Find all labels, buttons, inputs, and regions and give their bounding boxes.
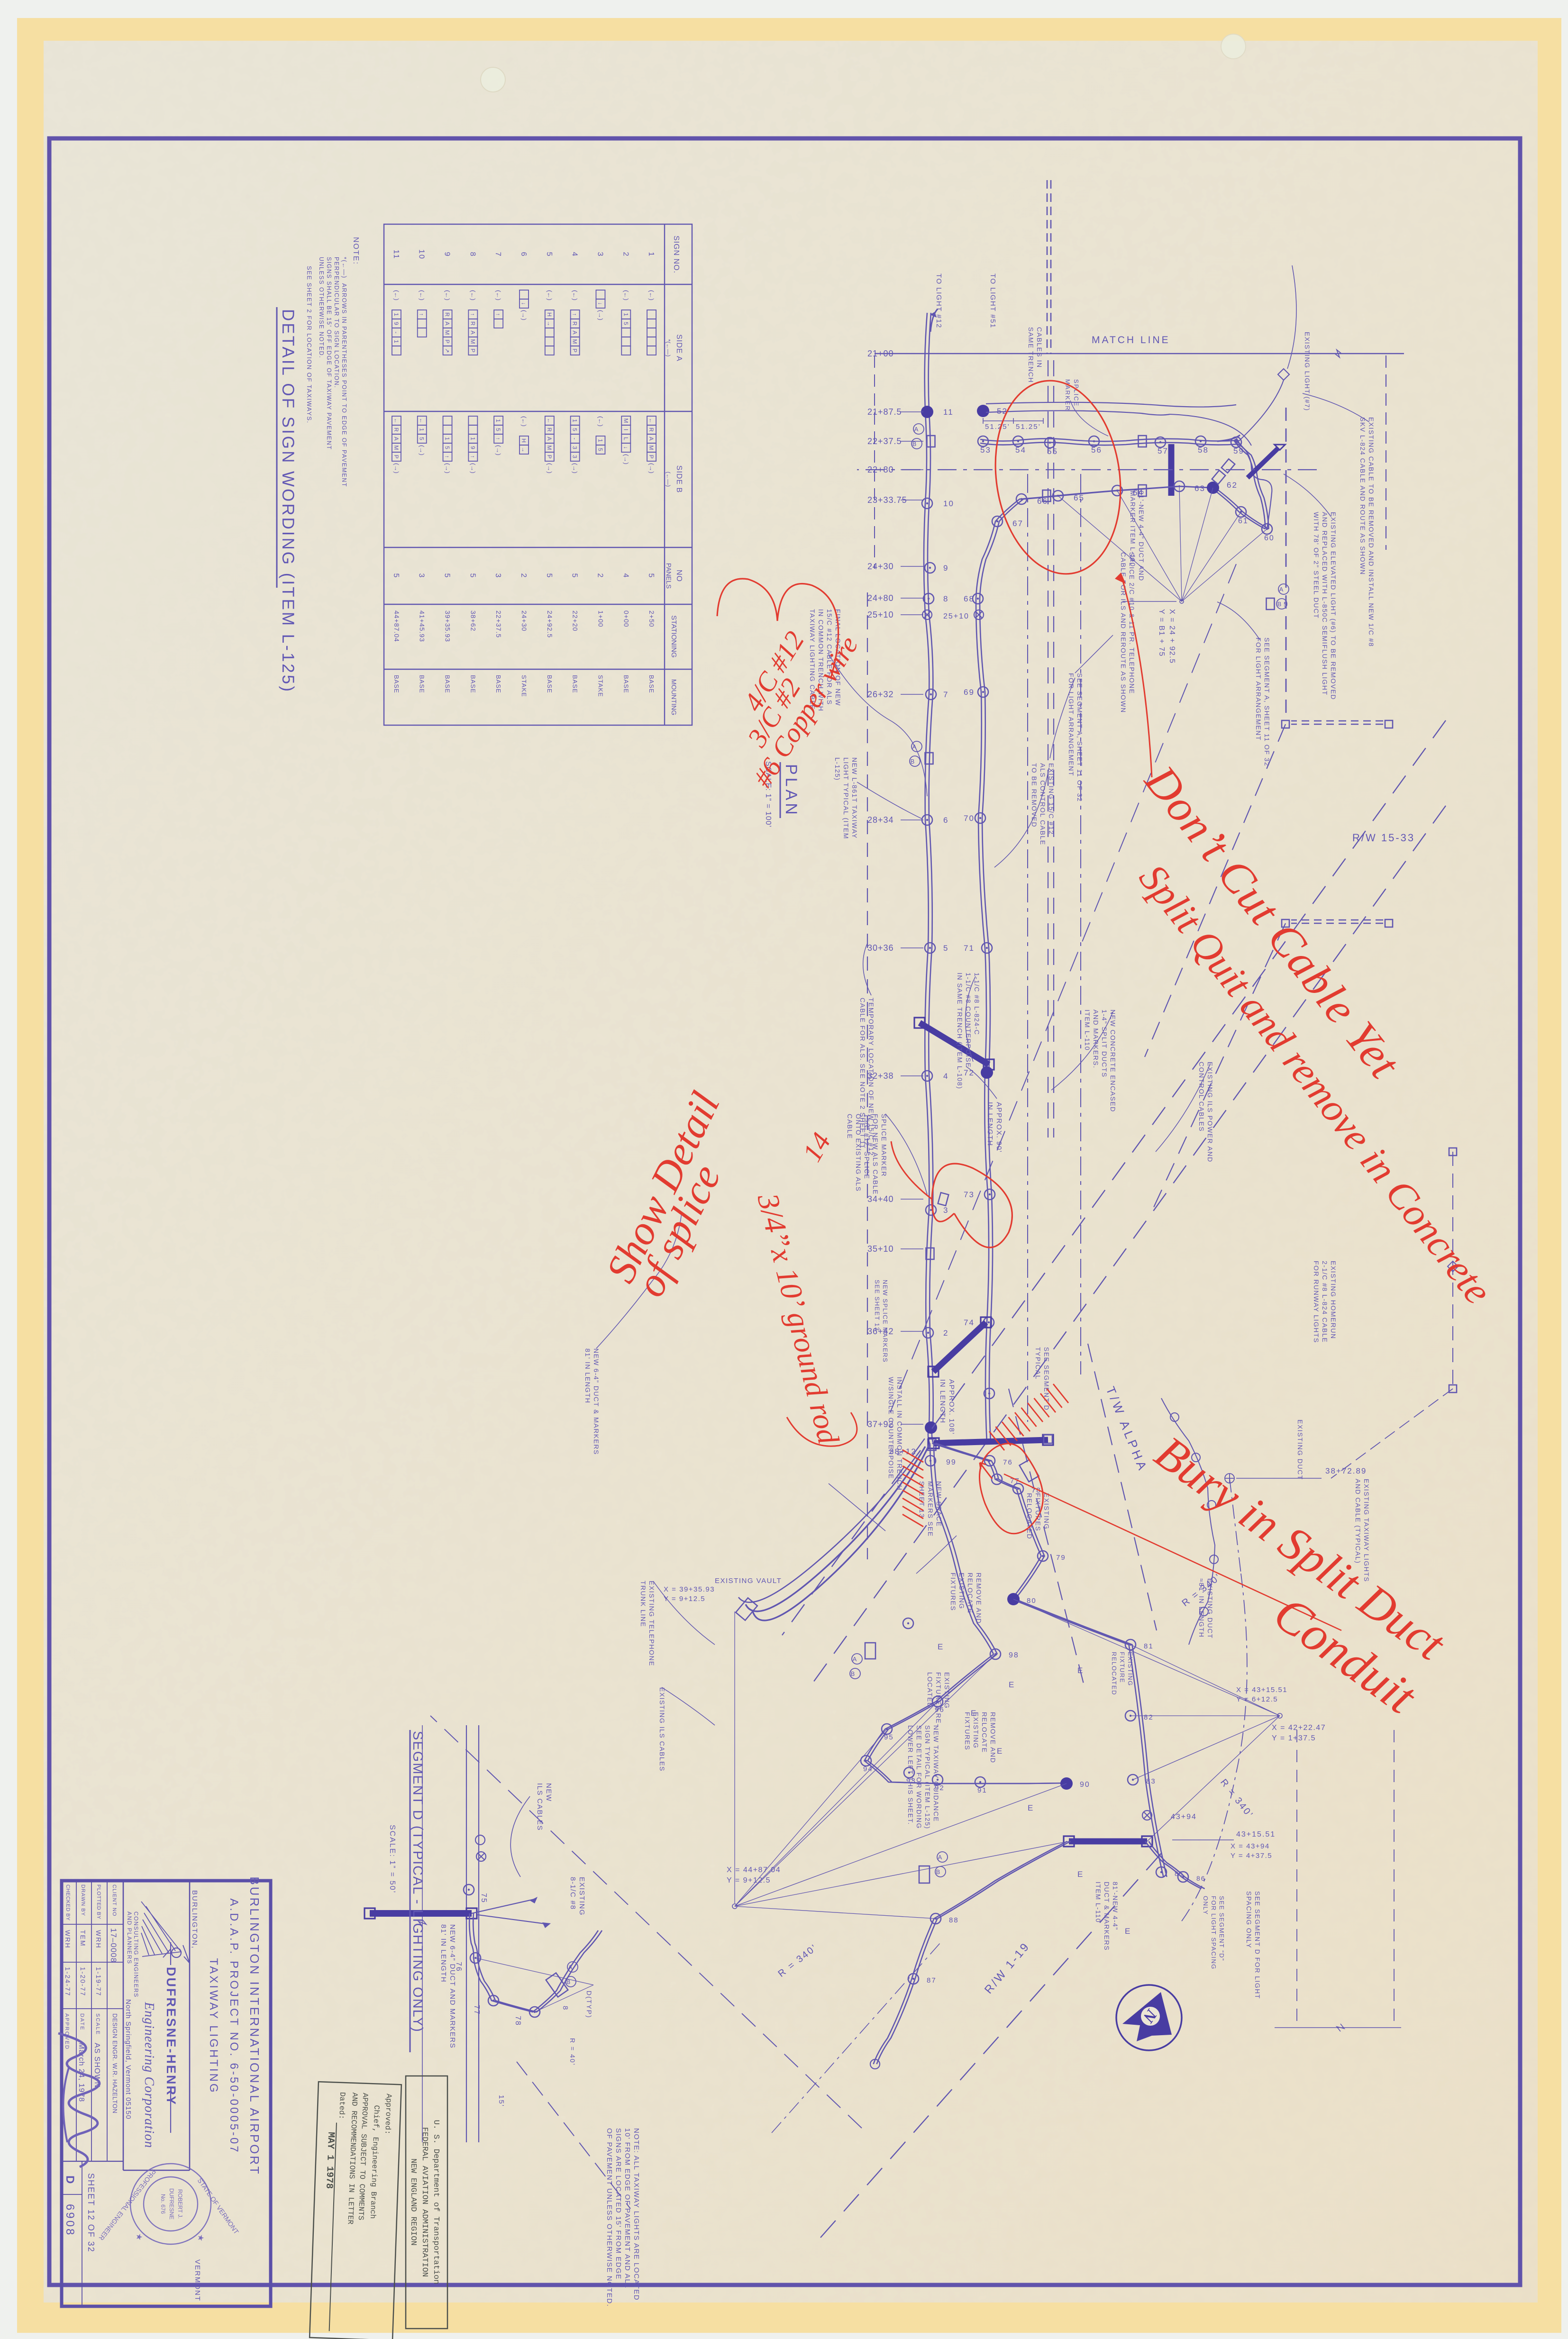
svg-text:BURLINGTON,: BURLINGTON,	[191, 1890, 199, 1949]
svg-text:W/SINGLE COUNTERPOISE: W/SINGLE COUNTERPOISE	[887, 1377, 895, 1479]
svg-text:DUFRESNE-HENRY: DUFRESNE-HENRY	[164, 1967, 178, 2106]
svg-text:24+30: 24+30	[520, 610, 528, 631]
svg-text:87: 87	[927, 1976, 937, 1984]
svg-text:EXISTING: EXISTING	[958, 1573, 966, 1609]
svg-text:BASE: BASE	[622, 675, 629, 693]
svg-text:9: 9	[393, 322, 400, 325]
svg-text:X = 42+22.47: X = 42+22.47	[1272, 1724, 1326, 1732]
svg-text:BASE: BASE	[393, 675, 400, 693]
svg-text:X = 43+94: X = 43+94	[1231, 1842, 1270, 1850]
svg-text:SCALE: SCALE	[95, 2013, 100, 2035]
svg-text:REMOVE AND: REMOVE AND	[989, 1712, 997, 1763]
svg-text:CHECKED BY: CHECKED BY	[65, 1884, 71, 1921]
svg-text:EXISTING: EXISTING	[1127, 1652, 1134, 1686]
svg-text:SCALE: 1” = 50’: SCALE: 1” = 50’	[388, 1825, 396, 1893]
svg-text:↓: ↓	[520, 302, 527, 305]
svg-text:IN SAME TRENCH (ITEM L-108): IN SAME TRENCH (ITEM L-108)	[956, 973, 964, 1089]
svg-text:8-1/C #8: 8-1/C #8	[569, 1877, 577, 1910]
svg-text:Y = 9+12.5: Y = 9+12.5	[664, 1595, 705, 1603]
svg-text:←: ←	[546, 418, 553, 424]
svg-text:1: 1	[469, 437, 476, 440]
svg-text:95: 95	[884, 1733, 894, 1741]
svg-text:L-125): L-125)	[834, 757, 841, 781]
svg-text:23+33.75: 23+33.75	[867, 495, 907, 505]
svg-text:44+87.04: 44+87.04	[393, 610, 401, 642]
svg-text:EXISTING CABLE TO BE REMOVED A: EXISTING CABLE TO BE REMOVED AND INSTALL…	[1367, 417, 1375, 647]
svg-text:PANELS: PANELS	[665, 563, 673, 589]
svg-text:VERMONT: VERMONT	[193, 2259, 201, 2302]
svg-text:P: P	[572, 348, 578, 352]
svg-text:82: 82	[1144, 1713, 1154, 1721]
svg-text:Approved:: Approved:	[383, 2093, 393, 2135]
svg-text:BASE: BASE	[469, 675, 476, 693]
svg-text:P: P	[546, 455, 553, 458]
svg-text:WRH: WRH	[64, 1930, 72, 1948]
svg-text:EXISTING DUCT: EXISTING DUCT	[1296, 1420, 1304, 1480]
svg-text:73: 73	[964, 1190, 975, 1199]
svg-text:R: R	[393, 428, 400, 432]
svg-text:81’-NEW 4-4” DUCT AND: 81’-NEW 4-4” DUCT AND	[1138, 491, 1145, 582]
svg-text:CONTROL CABLES: CONTROL CABLES	[1198, 1062, 1205, 1132]
svg-text:↑: ↑	[469, 455, 476, 458]
svg-text:FOR LIGHT SPACING: FOR LIGHT SPACING	[1210, 1896, 1217, 1970]
svg-text:P: P	[469, 348, 476, 352]
svg-text:E: E	[1125, 1927, 1131, 1936]
svg-text:PLOTTED BY: PLOTTED BY	[96, 1884, 101, 1920]
svg-text:CONSULTING ENGINEERS: CONSULTING ENGINEERS	[133, 1911, 139, 1998]
svg-text:MATCH LINE: MATCH LINE	[1092, 335, 1170, 346]
svg-text:LOCATED: LOCATED	[926, 1672, 934, 1708]
svg-text:STAKE: STAKE	[597, 675, 604, 697]
svg-text:SEE SEGMENT A, SHEET 11 OF 32: SEE SEGMENT A, SHEET 11 OF 32	[1263, 637, 1271, 766]
svg-text:X = 39+35.93: X = 39+35.93	[664, 1585, 715, 1593]
svg-text:*(←—): *(←—)	[665, 339, 672, 357]
svg-text:RELOCATED: RELOCATED	[1111, 1652, 1118, 1695]
svg-text:74: 74	[964, 1318, 975, 1327]
svg-text:STATIONING: STATIONING	[670, 615, 678, 657]
svg-text:57: 57	[1158, 446, 1168, 455]
svg-text:2: 2	[596, 573, 604, 579]
svg-text:5: 5	[545, 252, 553, 257]
svg-text:3: 3	[572, 455, 578, 458]
svg-text:A: A	[393, 437, 400, 440]
svg-text:24+80: 24+80	[867, 593, 894, 603]
svg-text:TO BE REMOVED: TO BE REMOVED	[1030, 763, 1038, 828]
svg-text:81’-NEW 4-4”: 81’-NEW 4-4”	[1112, 1882, 1119, 1930]
svg-text:5: 5	[419, 437, 425, 440]
svg-text:→: →	[520, 447, 527, 453]
svg-text:SPLICE: SPLICE	[1073, 379, 1080, 407]
svg-text:FIXTURES RE-: FIXTURES RE-	[935, 1672, 942, 1727]
svg-text:A: A	[546, 437, 553, 440]
svg-text:SPACING ONLY: SPACING ONLY	[1245, 1891, 1253, 1948]
svg-text:91: 91	[977, 1786, 987, 1794]
svg-text:SAME TRENCH: SAME TRENCH	[1027, 327, 1035, 383]
svg-text:60: 60	[1264, 534, 1275, 542]
svg-text:A: A	[938, 1854, 942, 1861]
svg-text:1: 1	[393, 340, 400, 343]
svg-text:34+40: 34+40	[867, 1194, 894, 1204]
svg-text:3: 3	[418, 573, 426, 579]
svg-text:FOR RUNWAY LIGHTS: FOR RUNWAY LIGHTS	[1313, 1261, 1320, 1343]
svg-text:R/W 15-33: R/W 15-33	[1352, 832, 1415, 844]
svg-text:R: R	[546, 428, 553, 432]
svg-text:1: 1	[444, 437, 451, 440]
svg-text:15/C #12. SPLICE: 15/C #12. SPLICE	[863, 1114, 871, 1179]
svg-text:M: M	[469, 339, 476, 344]
svg-text:MARKER ITEM L-110: MARKER ITEM L-110	[1129, 491, 1137, 567]
svg-text:10: 10	[418, 249, 426, 260]
svg-text:1-4” SPLIT DUCTS: 1-4” SPLIT DUCTS	[1101, 1010, 1108, 1078]
svg-text:4: 4	[571, 252, 579, 257]
svg-text:81’ IN LENGTH: 81’ IN LENGTH	[584, 1348, 592, 1403]
svg-text:5: 5	[597, 448, 603, 451]
svg-text:(→): (→)	[520, 310, 528, 320]
svg-text:NEW 6-4” DUCT & MARKERS: NEW 6-4” DUCT & MARKERS	[593, 1348, 600, 1455]
svg-text:83: 83	[1146, 1777, 1156, 1785]
svg-text:Y = 4+37.5: Y = 4+37.5	[1231, 1852, 1272, 1860]
svg-text:X = 24 + 92.5: X = 24 + 92.5	[1168, 609, 1176, 664]
svg-text:Y = 1+37.5: Y = 1+37.5	[1272, 1734, 1316, 1742]
svg-text:24+92.5: 24+92.5	[546, 610, 554, 638]
svg-text:(←): (←)	[648, 290, 655, 300]
svg-text:ONLY: ONLY	[1202, 1896, 1209, 1915]
svg-text:(→): (→)	[622, 454, 629, 464]
svg-text:Y = 6+12.5: Y = 6+12.5	[1236, 1695, 1278, 1703]
svg-text:(←): (←)	[572, 290, 579, 300]
svg-text:5: 5	[495, 428, 501, 431]
svg-text:B: B	[1277, 601, 1282, 608]
svg-text:M: M	[622, 419, 629, 423]
svg-text:MOUNTING: MOUNTING	[670, 679, 678, 715]
svg-text:41+45.93: 41+45.93	[419, 610, 426, 642]
svg-text:(←): (←)	[520, 416, 528, 427]
svg-text:28+34: 28+34	[867, 815, 894, 825]
svg-text:SPLICE MARKER: SPLICE MARKER	[880, 1114, 888, 1177]
svg-text:77: 77	[473, 2005, 481, 2015]
svg-text:51.25’: 51.25’	[1016, 423, 1041, 431]
svg-text:SEE SHEET 2 FOR LOCATION OF TA: SEE SHEET 2 FOR LOCATION OF TAXIWAYS.	[306, 266, 313, 424]
svg-text:51.25’: 51.25’	[985, 423, 1010, 431]
svg-text:A: A	[914, 426, 919, 433]
svg-text:U. S. Department of Transporta: U. S. Department of Transportation	[431, 2120, 440, 2284]
svg-text:EXISTING: EXISTING	[943, 1672, 951, 1709]
svg-text:ONTO EXISTING ALS: ONTO EXISTING ALS	[855, 1114, 862, 1192]
svg-text:(←): (←)	[393, 290, 400, 300]
svg-text:MARKERS SEE: MARKERS SEE	[927, 1481, 934, 1537]
svg-text:22+20: 22+20	[572, 610, 579, 631]
svg-text:ALS CONTROL CABLE: ALS CONTROL CABLE	[1039, 763, 1047, 846]
svg-text:1: 1	[647, 252, 655, 257]
svg-text:E: E	[1077, 1666, 1084, 1675]
svg-text:BASE: BASE	[495, 675, 502, 693]
svg-text:↗: ↗	[444, 348, 451, 353]
svg-text:9: 9	[443, 252, 451, 257]
svg-text:21+87.5: 21+87.5	[867, 407, 902, 417]
svg-text:B: B	[851, 1670, 855, 1677]
svg-text:PERPENDICULAR TO SIGN LOCATION: PERPENDICULAR TO SIGN LOCATION.	[333, 257, 340, 388]
svg-text:79: 79	[1056, 1554, 1066, 1562]
svg-text:A: A	[1279, 586, 1284, 593]
svg-text:A: A	[568, 1964, 573, 1971]
svg-text:CABLE: CABLE	[846, 1114, 854, 1139]
svg-text:NO: NO	[675, 570, 683, 582]
svg-text:75: 75	[480, 1893, 488, 1903]
svg-text:98: 98	[1009, 1651, 1019, 1659]
svg-text:26+32: 26+32	[867, 690, 894, 699]
svg-text:(→): (→)	[444, 463, 451, 473]
svg-text:5: 5	[943, 944, 948, 953]
svg-text:35+10: 35+10	[867, 1244, 894, 1254]
svg-text:←: ←	[648, 418, 655, 424]
svg-text:SIGNS SHALL BE 15’ OFF EDGE OF: SIGNS SHALL BE 15’ OFF EDGE OF TAXIWAY P…	[326, 257, 332, 450]
svg-text:(←—): (←—)	[665, 472, 672, 487]
svg-text:INSTALL IN COMMON TRENCH: INSTALL IN COMMON TRENCH	[896, 1377, 903, 1491]
svg-text:UNLESS OTHERWISE NOTED.: UNLESS OTHERWISE NOTED.	[318, 257, 325, 358]
svg-text:0+00: 0+00	[622, 610, 630, 628]
svg-text:EXISTING ELEVATED LIGHT (#6) T: EXISTING ELEVATED LIGHT (#6) TO BE REMOV…	[1330, 512, 1337, 700]
svg-text:M: M	[572, 339, 578, 344]
svg-text:61: 61	[1238, 517, 1249, 525]
svg-text:1: 1	[393, 313, 400, 316]
svg-text:DETAIL OF SIGN WORDING (ITEM L: DETAIL OF SIGN WORDING (ITEM L-125)	[279, 309, 297, 693]
svg-text:EXISTING 15/C #12: EXISTING 15/C #12	[1048, 763, 1055, 835]
svg-text:EXISTING: EXISTING	[578, 1877, 586, 1916]
svg-text:TAXIWAY LIGHTING: TAXIWAY LIGHTING	[207, 1958, 220, 2094]
svg-text:WRH: WRH	[95, 1930, 102, 1948]
svg-text:11: 11	[943, 408, 954, 417]
svg-text:1: 1	[597, 439, 603, 442]
svg-text:I: I	[622, 429, 629, 430]
svg-text:APPROX. 108’: APPROX. 108’	[948, 1379, 956, 1435]
svg-text:1: 1	[622, 313, 629, 316]
svg-text:ITEM L-110: ITEM L-110	[1084, 1010, 1091, 1051]
svg-text:★: ★	[196, 2234, 205, 2241]
svg-text:↑: ↑	[444, 455, 451, 458]
svg-text:5: 5	[622, 322, 629, 325]
svg-text:(→): (→)	[546, 463, 553, 473]
svg-text:A: A	[444, 321, 451, 325]
svg-text:69: 69	[964, 688, 975, 697]
svg-text:North Springfield, Vermont 051: North Springfield, Vermont 05150	[124, 1999, 132, 2120]
svg-text:3: 3	[943, 1206, 948, 1215]
svg-text:BASE: BASE	[648, 675, 655, 693]
svg-text:(←): (←)	[419, 290, 426, 300]
svg-text:EXISTING HOMERUN: EXISTING HOMERUN	[1330, 1261, 1337, 1339]
svg-text:72: 72	[964, 1068, 975, 1077]
svg-text:R: R	[572, 321, 578, 326]
svg-text:7: 7	[494, 252, 502, 257]
svg-text:E: E	[1009, 1680, 1015, 1689]
svg-text:APPROVED: APPROVED	[64, 2013, 70, 2050]
svg-text:53: 53	[980, 446, 991, 455]
svg-text:TRUNK LINE: TRUNK LINE	[639, 1581, 647, 1627]
svg-text:↑: ↑	[495, 437, 501, 440]
svg-text:BASE: BASE	[572, 675, 579, 693]
svg-text:EXISTING VAULT: EXISTING VAULT	[715, 1577, 782, 1585]
svg-text:10: 10	[943, 499, 954, 508]
svg-text:A.D.A.P. PROJECT NO. 6-50-0005: A.D.A.P. PROJECT NO. 6-50-0005-07	[228, 1898, 240, 2154]
svg-text:6: 6	[943, 816, 948, 825]
svg-text:A: A	[853, 1656, 857, 1663]
svg-text:SIGNS ARE LOCATED 15’ FROM EDG: SIGNS ARE LOCATED 15’ FROM EDGE	[614, 2128, 622, 2280]
svg-text:88: 88	[949, 1916, 959, 1924]
svg-text:↑: ↑	[419, 313, 425, 316]
svg-text:(←): (←)	[622, 290, 629, 300]
svg-text:EXISTING: EXISTING	[972, 1712, 980, 1748]
svg-text:IN LENGTH: IN LENGTH	[986, 1102, 994, 1147]
svg-text:(→): (→)	[648, 463, 655, 473]
svg-text:IN LENGTH: IN LENGTH	[939, 1379, 947, 1424]
svg-text:22+37.5: 22+37.5	[867, 437, 902, 446]
svg-text:A: A	[572, 330, 578, 334]
svg-text:NOTE: ALL TAXIWAY LIGHTS ARE: NOTE: ALL TAXIWAY LIGHTS ARE LOCATED	[632, 2128, 640, 2301]
svg-text:SIDE A: SIDE A	[675, 334, 683, 362]
svg-text:←: ←	[393, 418, 400, 424]
svg-text:(←): (←)	[495, 290, 502, 300]
svg-text:NEW TAXIWAY GUIDANCE: NEW TAXIWAY GUIDANCE	[932, 1725, 940, 1822]
svg-text:54: 54	[1015, 446, 1026, 455]
svg-text:H: H	[520, 438, 527, 443]
svg-text:1-20-77: 1-20-77	[79, 1967, 87, 1996]
svg-text:(→): (→)	[393, 463, 400, 473]
svg-text:38+62: 38+62	[469, 610, 477, 631]
svg-text:↑: ↑	[469, 313, 476, 316]
svg-text:FOR LIGHT ARRANGEMENT: FOR LIGHT ARRANGEMENT	[1255, 637, 1262, 741]
svg-text:STAKE: STAKE	[520, 675, 528, 697]
svg-text:1: 1	[495, 419, 501, 422]
svg-text:5: 5	[444, 446, 451, 449]
svg-text:D(TYP): D(TYP)	[585, 1991, 593, 2019]
svg-text:25+10: 25+10	[867, 610, 894, 619]
svg-text:63: 63	[1194, 484, 1205, 493]
svg-text:AND CABLE (TYPICAL): AND CABLE (TYPICAL)	[1354, 1479, 1362, 1564]
svg-text:2: 2	[520, 573, 528, 579]
svg-text:(→): (→)	[469, 463, 476, 473]
svg-text:RELOCATE: RELOCATE	[981, 1712, 988, 1753]
svg-text:X = 43+15.51: X = 43+15.51	[1236, 1686, 1287, 1694]
svg-text:5: 5	[468, 573, 476, 579]
svg-text:No. 676: No. 676	[160, 2194, 166, 2214]
svg-text:DATE: DATE	[79, 2013, 85, 2031]
svg-text:3: 3	[494, 573, 502, 579]
svg-text:17–0008: 17–0008	[109, 1928, 118, 1963]
svg-text:RELOCATE: RELOCATE	[966, 1573, 974, 1613]
svg-text:E: E	[1028, 1803, 1034, 1812]
svg-text:ILS CABLES: ILS CABLES	[536, 1783, 544, 1831]
svg-text:(→): (→)	[597, 310, 604, 320]
svg-text:43+15.51: 43+15.51	[1236, 1830, 1276, 1838]
svg-text:H: H	[546, 312, 553, 317]
svg-text:OF PAVEMENT UNLESS OTHERWISE N: OF PAVEMENT UNLESS OTHERWISE NOTED.	[605, 2128, 613, 2307]
svg-text:Engineering Corporation: Engineering Corporation	[142, 2002, 156, 2148]
svg-text:DRAWN BY: DRAWN BY	[80, 1884, 86, 1916]
svg-text:EXISTING: EXISTING	[1043, 1493, 1050, 1529]
svg-text:90: 90	[1080, 1781, 1090, 1789]
svg-text:★: ★	[135, 2233, 144, 2240]
svg-text:ITEM L-110: ITEM L-110	[1094, 1882, 1102, 1923]
svg-text:*(←—) ARROWS IN PARENTHESES P: *(←—) ARROWS IN PARENTHESES POINT TO EDG…	[341, 257, 347, 487]
svg-text:FIXTURE: FIXTURE	[1119, 1652, 1126, 1683]
svg-text:30+36: 30+36	[867, 943, 894, 953]
svg-text:2+50: 2+50	[648, 610, 656, 628]
svg-text:SIGN NO.: SIGN NO.	[672, 236, 680, 273]
svg-text:R: R	[469, 321, 476, 326]
svg-text:24+30: 24+30	[867, 562, 894, 571]
svg-text:P: P	[648, 455, 655, 458]
svg-text:M: M	[546, 446, 553, 450]
svg-text:43+94: 43+94	[1171, 1813, 1197, 1821]
svg-text:1: 1	[572, 419, 578, 422]
svg-text:LIGHT TYPICAL (ITEM: LIGHT TYPICAL (ITEM	[842, 757, 850, 839]
svg-text:DUFRESNE: DUFRESNE	[168, 2188, 175, 2220]
svg-text:NEW SPLICE MARKERS: NEW SPLICE MARKERS	[882, 1280, 889, 1363]
svg-text:80: 80	[1027, 1597, 1037, 1605]
svg-text:2: 2	[621, 252, 629, 257]
svg-text:EXISTING TELEPHONE: EXISTING TELEPHONE	[648, 1581, 656, 1666]
svg-text:Y = 9+12.5: Y = 9+12.5	[727, 1876, 771, 1884]
svg-text:-: -	[572, 438, 578, 440]
svg-text:8: 8	[561, 2006, 569, 2011]
svg-text:REMOVE AND: REMOVE AND	[975, 1573, 983, 1624]
svg-text:LOWER LEFT THIS SHEET.: LOWER LEFT THIS SHEET.	[907, 1725, 914, 1825]
svg-text:WITH 78’ OF 2” STEEL DUCT: WITH 78’ OF 2” STEEL DUCT	[1313, 512, 1320, 619]
svg-text:6: 6	[520, 252, 528, 257]
svg-text:SEE SEGMENT “D”: SEE SEGMENT “D”	[1218, 1896, 1225, 1961]
svg-text:←: ←	[419, 418, 425, 424]
svg-text:6908: 6908	[64, 2204, 76, 2237]
svg-text:(→): (→)	[495, 445, 502, 455]
svg-text:NEW: NEW	[545, 1783, 553, 1802]
svg-text:NEW ENGLAND REGION: NEW ENGLAND REGION	[409, 2158, 418, 2246]
svg-text:76: 76	[1003, 1458, 1013, 1466]
svg-text:TYPICAL: TYPICAL	[1034, 1347, 1042, 1380]
svg-text:SPLICE 2/C #10 & 11 PR. TELEPH: SPLICE 2/C #10 & 11 PR. TELEPHONE	[1128, 552, 1136, 694]
svg-text:SIGN TYPICAL (ITEM L-125): SIGN TYPICAL (ITEM L-125)	[924, 1725, 931, 1829]
svg-text:1+00: 1+00	[597, 610, 604, 628]
svg-text:(←): (←)	[546, 290, 553, 300]
svg-text:3: 3	[572, 446, 578, 449]
svg-text:NEW SPACE: NEW SPACE	[935, 1481, 943, 1527]
svg-text:4: 4	[621, 573, 629, 579]
svg-text:25+10: 25+10	[943, 612, 969, 620]
svg-text:Y = B1 + 75: Y = B1 + 75	[1158, 609, 1166, 657]
svg-text:1-24-77: 1-24-77	[64, 1967, 72, 1996]
svg-text:9: 9	[469, 446, 476, 449]
svg-text:SEE SEGMENT A, SHEET 11 OF 32: SEE SEGMENT A, SHEET 11 OF 32	[1076, 673, 1084, 802]
svg-text:NEW CONCRETE ENCASED: NEW CONCRETE ENCASED	[1109, 1010, 1117, 1112]
svg-text:↓: ↓	[622, 446, 629, 449]
svg-text:71: 71	[964, 944, 975, 953]
svg-text:FIXTURES: FIXTURES	[949, 1573, 957, 1611]
svg-text:A: A	[648, 437, 655, 440]
svg-text:68: 68	[964, 594, 975, 603]
svg-text:(→): (→)	[419, 445, 426, 455]
svg-text:39+35.93: 39+35.93	[444, 610, 452, 642]
svg-text:3: 3	[596, 252, 604, 257]
svg-text:B: B	[911, 758, 915, 765]
svg-text:NEW L-861T TAXIWAY: NEW L-861T TAXIWAY	[851, 757, 858, 839]
svg-text:M: M	[444, 330, 451, 335]
svg-text:5: 5	[392, 573, 400, 579]
svg-text:FEDERAL AVIATION ADMINISTRATIO: FEDERAL AVIATION ADMINISTRATION	[420, 2127, 429, 2277]
svg-text:RELOCATED: RELOCATED	[1026, 1493, 1033, 1539]
svg-text:AND REPLACED WITH L-850C SEMIF: AND REPLACED WITH L-850C SEMIFLUSH LIGHT	[1321, 512, 1329, 696]
svg-text:67: 67	[1012, 519, 1023, 528]
svg-text:↓: ↓	[597, 302, 603, 305]
svg-text:65: 65	[1074, 493, 1085, 502]
svg-text:SEE SEGMENT D FOR LIGHT: SEE SEGMENT D FOR LIGHT	[1254, 1891, 1261, 1999]
